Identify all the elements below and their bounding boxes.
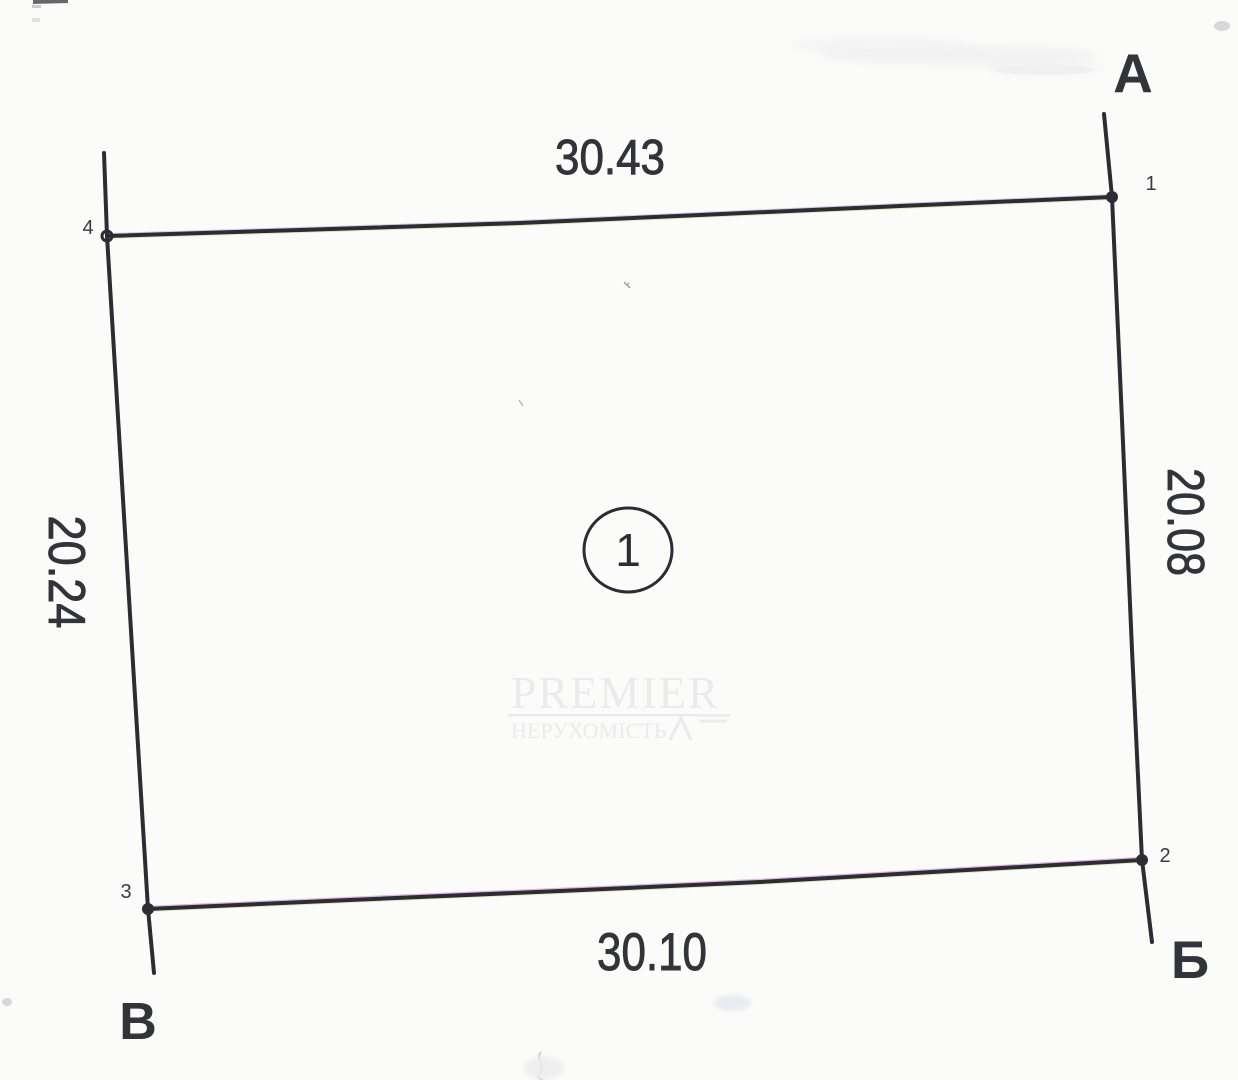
svg-text:1: 1 [1145,173,1156,195]
svg-text:В: В [119,993,157,1051]
svg-text:Б: Б [1171,931,1209,990]
svg-text:1: 1 [615,524,641,576]
svg-text:А: А [1113,42,1153,104]
svg-text:20.24: 20.24 [37,516,95,629]
svg-text:20.08: 20.08 [1156,468,1214,576]
svg-text:30.10: 30.10 [597,923,707,982]
svg-text:4: 4 [82,217,93,239]
svg-text:30.43: 30.43 [555,131,665,185]
svg-text:PREMIER: PREMIER [511,668,726,718]
svg-text:3: 3 [120,881,131,903]
svg-text:2: 2 [1159,845,1170,867]
svg-text:НЕРУХОМІСТЬ: НЕРУХОМІСТЬ [511,718,669,743]
